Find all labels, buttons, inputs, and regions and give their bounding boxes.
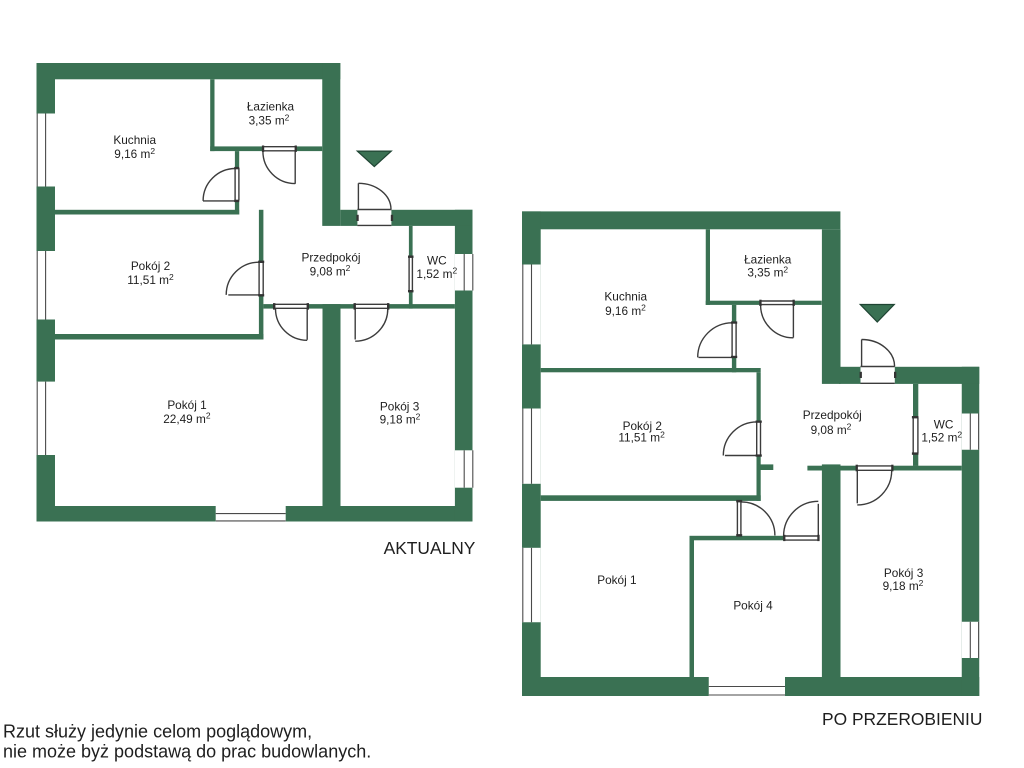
svg-text:9,18 m2: 9,18 m2	[380, 411, 421, 426]
svg-text:9,16 m2: 9,16 m2	[114, 146, 155, 161]
svg-text:Przedpokój: Przedpokój	[301, 251, 360, 265]
svg-text:1,52 m2: 1,52 m2	[416, 266, 457, 281]
svg-text:9,08 m2: 9,08 m2	[811, 422, 852, 437]
svg-text:Pokój 1: Pokój 1	[167, 398, 206, 412]
svg-text:Kuchnia: Kuchnia	[604, 290, 647, 304]
svg-text:WC: WC	[934, 418, 954, 432]
svg-text:nie może byż podstawą do prac: nie może byż podstawą do prac budowlanyc…	[3, 742, 371, 762]
svg-text:3,35 m2: 3,35 m2	[747, 264, 788, 279]
svg-text:Pokój 3: Pokój 3	[380, 399, 420, 413]
svg-text:Pokój 2: Pokój 2	[131, 259, 170, 273]
svg-text:9,18 m2: 9,18 m2	[883, 578, 924, 593]
svg-text:AKTUALNY: AKTUALNY	[384, 538, 476, 558]
svg-text:1,52 m2: 1,52 m2	[921, 429, 962, 444]
svg-text:Pokój 4: Pokój 4	[733, 599, 773, 613]
svg-text:11,51 m2: 11,51 m2	[127, 272, 174, 287]
svg-text:9,16 m2: 9,16 m2	[605, 303, 646, 318]
svg-text:22,49 m2: 22,49 m2	[163, 411, 211, 426]
svg-text:Pokój 1: Pokój 1	[597, 573, 636, 587]
svg-text:9,08 m2: 9,08 m2	[310, 263, 351, 278]
svg-text:Przedpokój: Przedpokój	[803, 408, 862, 422]
svg-text:11,51 m2: 11,51 m2	[618, 429, 665, 444]
svg-text:Rzut służy jedynie celom poglą: Rzut służy jedynie celom poglądowym,	[3, 722, 312, 742]
svg-text:3,35 m2: 3,35 m2	[249, 112, 290, 127]
svg-text:WC: WC	[427, 254, 447, 268]
svg-text:PO PRZEROBIENIU: PO PRZEROBIENIU	[822, 709, 982, 729]
